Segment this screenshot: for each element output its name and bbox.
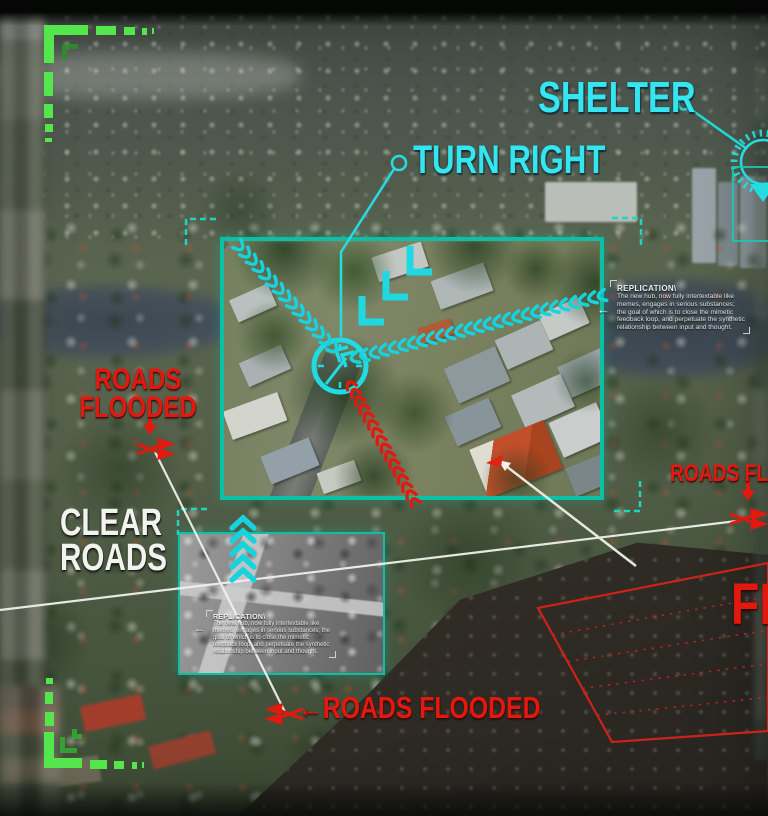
panel-left-arrow-icon: ← [597,302,610,317]
replication-panel-inset: REPLICATION\ The new hub, now fully inte… [213,614,331,656]
roads-flooded-bottom-text: ROADS FLOODED [323,690,541,725]
roads-flooded-left-label: ROADS FLOODED [78,366,198,422]
flood-zone-label: FLOODED [731,576,768,634]
replication-panel-right: REPLICATION\ The new hub, now fully inte… [617,284,745,332]
inset-trees [224,241,600,496]
panel-corner-mark [206,610,213,617]
roads-flooded-bottom-label: ←ROADS FLOODED [298,692,541,723]
clear-roads-label: CLEAR ROADS [60,506,167,576]
roads-flooded-left-line1: ROADS [78,366,198,394]
clear-roads-line1: CLEAR [60,506,167,541]
shelter-label: SHELTER [538,76,696,120]
clear-roads-line2: ROADS [60,541,167,576]
panel-left-arrow-icon: ← [194,623,205,635]
panel-title: REPLICATION\ [617,284,745,293]
panel-body: The new hub, now fully intertextable lik… [213,621,331,656]
roads-flooded-right-label: ROADS FLOODED [670,462,768,486]
panel-title: REPLICATION\ [213,614,331,621]
turn-right-label: TURN RIGHT [413,140,605,180]
roads-flooded-left-line2: FLOODED [78,394,198,422]
panel-body: The new hub, now fully intertextable lik… [617,293,745,332]
hud-frame: SHELTER TURN RIGHT ROADS FLOODED CLEAR R… [0,0,768,816]
panel-corner-mark [610,280,617,287]
left-arrow-icon: ← [298,690,323,725]
route-zoom-inset [220,237,604,500]
